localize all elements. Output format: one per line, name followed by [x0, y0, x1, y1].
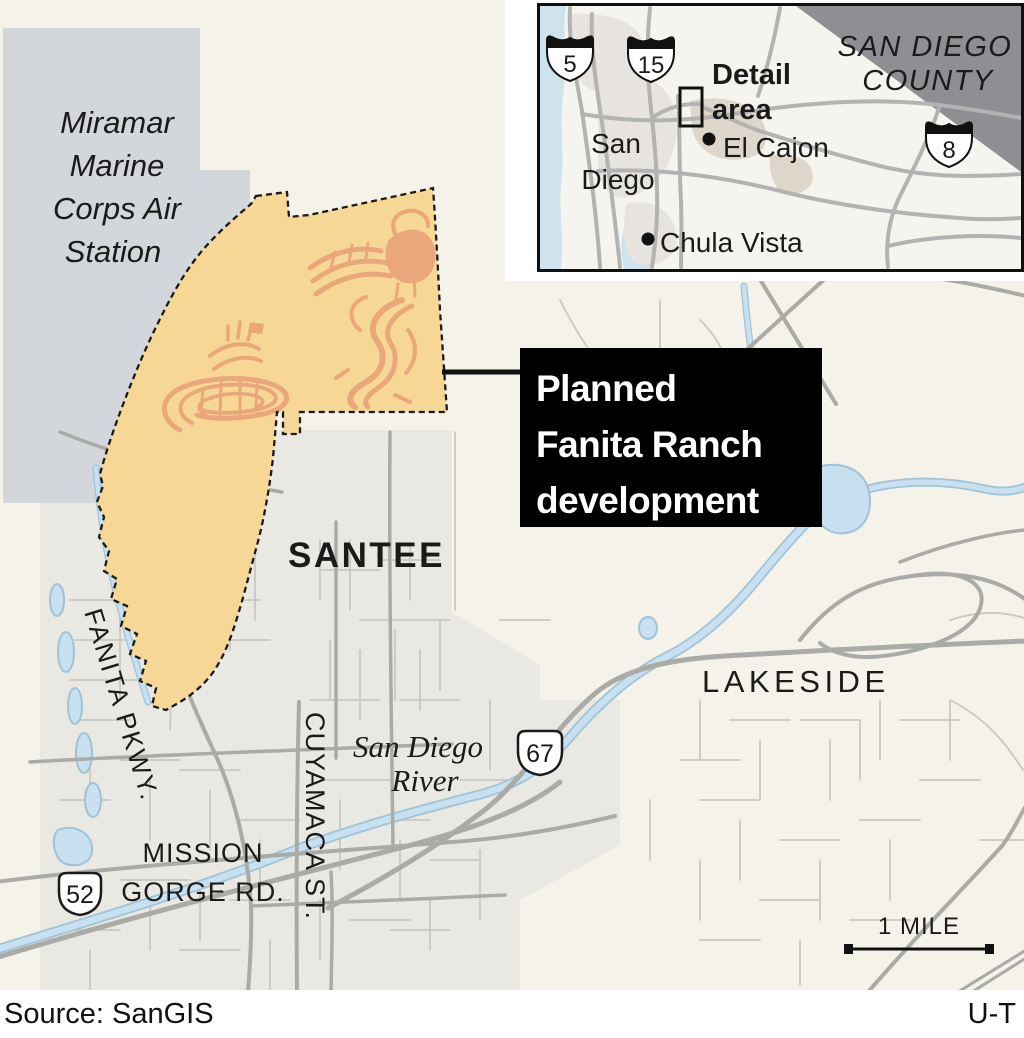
miramar-label-line2: Marine — [70, 148, 165, 183]
chula-vista-label: Chula Vista — [660, 227, 803, 258]
interstate-8-number: 8 — [942, 137, 955, 164]
scale-bar-label: 1 MILE — [878, 913, 960, 940]
lakeside-label: LAKESIDE — [702, 664, 890, 699]
chula-vista-dot — [642, 233, 655, 246]
callout-line3: development — [536, 473, 822, 529]
source-credit: Source: SanGIS — [4, 998, 214, 1031]
inset-map-frame: 5 15 8 SAN DIEGO COUNTY Detail — [537, 3, 1024, 272]
county-label-line1: SAN DIEGO — [838, 31, 1013, 63]
river-label-line1: San Diego — [353, 729, 483, 764]
detail-area-label-line1: Detail — [712, 59, 791, 91]
miramar-label-line3: Corps Air — [53, 191, 183, 226]
cuyamaca-st-road — [297, 702, 299, 990]
mission-gorge-label-line2: GORGE RD. — [121, 877, 285, 907]
interstate-15-number: 15 — [638, 52, 665, 79]
detail-area-label-line2: area — [712, 94, 773, 126]
inset-panel: 5 15 8 SAN DIEGO COUNTY Detail — [505, 0, 1024, 281]
el-cajon-label: El Cajon — [723, 132, 829, 163]
san-diego-label-line2: Diego — [581, 164, 654, 195]
cuyamaca-st-label: CUYAMACA ST. — [300, 712, 330, 920]
callout-line1: Planned — [536, 361, 822, 417]
route-67-number: 67 — [526, 740, 554, 768]
interstate-5-number: 5 — [563, 51, 576, 78]
inset-map: 5 15 8 SAN DIEGO COUNTY Detail — [540, 6, 1021, 269]
el-cajon-dot — [703, 133, 716, 146]
miramar-label-line4: Station — [65, 234, 162, 269]
river-pond — [815, 465, 870, 534]
callout-box: Planned Fanita Ranch development — [520, 348, 822, 527]
footer-bar: Source: SanGIS U-T — [0, 990, 1024, 1038]
county-label-line2: COUNTY — [862, 65, 995, 97]
fanita-ranch-locator-map: 52 67 Miramar Marine Corps Air Station S… — [0, 0, 1024, 1038]
publisher-credit: U-T — [968, 998, 1016, 1031]
river-label-line2: River — [390, 763, 459, 798]
route-52-number: 52 — [66, 881, 94, 909]
callout-line2: Fanita Ranch — [536, 417, 822, 473]
mission-gorge-label-line1: MISSION — [142, 838, 263, 868]
san-diego-label-line1: San — [591, 128, 641, 159]
santee-label: SANTEE — [288, 536, 445, 575]
miramar-label-line1: Miramar — [60, 105, 175, 140]
route-67-shield: 67 — [518, 731, 562, 775]
route-52-shield: 52 — [59, 873, 101, 915]
